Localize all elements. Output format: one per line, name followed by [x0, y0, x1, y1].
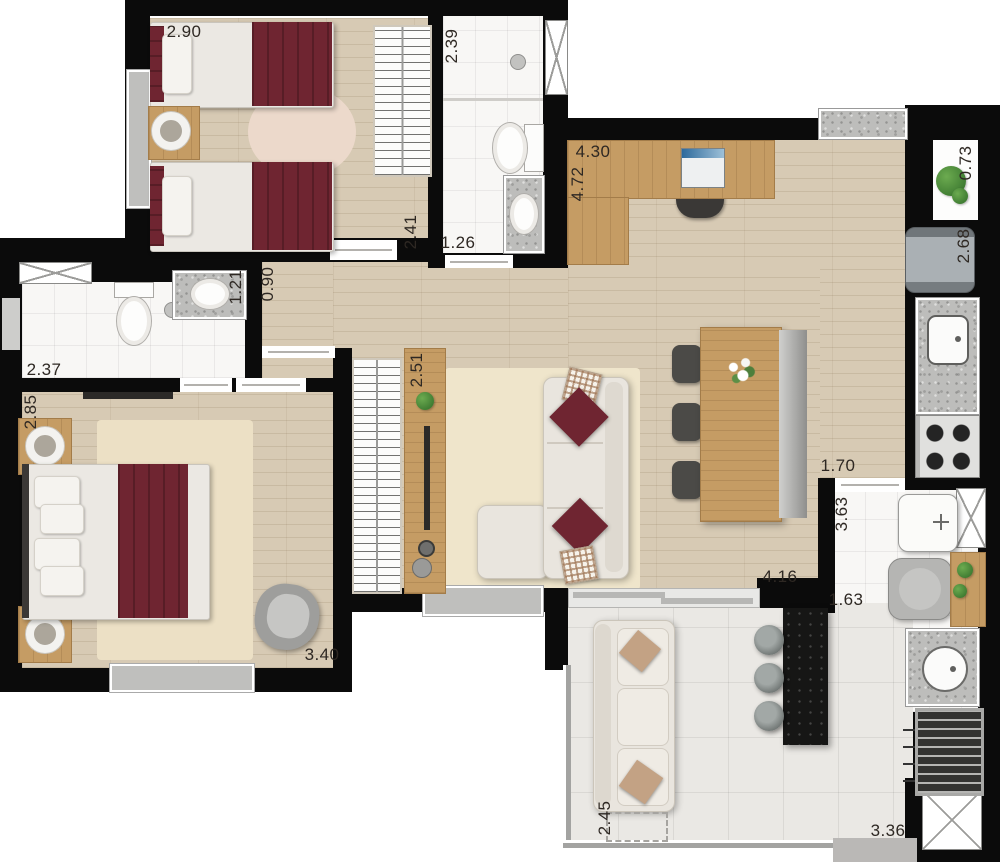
bar-stool	[754, 701, 784, 731]
shower-head-icon	[510, 54, 526, 70]
bath1-vent-window	[545, 20, 568, 95]
stove	[915, 415, 980, 478]
dim-bath1-width: 1.26	[441, 233, 476, 253]
faucet-icon	[950, 666, 956, 672]
dim-bath1-depth: 2.39	[442, 29, 462, 64]
bar-stool	[754, 625, 784, 655]
dim-fridge-wall: 2.68	[954, 229, 974, 264]
laptop-screen	[682, 149, 724, 158]
hall-opening	[262, 346, 335, 358]
dining-chair	[672, 461, 702, 499]
bath1-sink	[509, 193, 539, 235]
dim-bath2-width: 1.21	[226, 270, 246, 305]
living-wardrobe	[352, 358, 402, 594]
bedroom1-door	[330, 240, 397, 260]
dim-bedroom1-width: 2.90	[167, 22, 202, 42]
washing-machine	[898, 494, 958, 552]
sofa-back	[605, 382, 623, 572]
wall-kitchen-top	[560, 118, 822, 140]
bath2-sink	[190, 278, 230, 310]
twin-bed-2-blanket	[252, 162, 332, 250]
planter-plant-icon	[952, 188, 968, 204]
dim-bath2-length: 2.37	[27, 360, 62, 380]
laundry-machine	[888, 558, 952, 620]
twin-bed-1-pillow	[162, 34, 192, 94]
living-tv	[424, 426, 430, 530]
master-lamp-2	[26, 615, 64, 653]
pass-through-counter	[818, 108, 908, 140]
desk-return	[567, 197, 629, 265]
dim-terrace-depth: 2.45	[595, 801, 615, 836]
flower-centerpiece-icon	[722, 352, 760, 390]
bedroom1-lamp	[152, 112, 190, 150]
bed-pillow	[40, 504, 84, 534]
toilet2-bowl	[116, 296, 152, 346]
dim-kitchen-opening: 1.70	[821, 456, 856, 476]
bath2-door	[180, 378, 232, 392]
kitchen-sink	[927, 315, 969, 365]
dim-terrace-length: 3.36	[871, 821, 906, 841]
dim-master-length: 3.40	[305, 645, 340, 665]
machine-lid	[899, 568, 941, 610]
furniture-outline	[606, 812, 668, 842]
rack-plant-icon	[416, 392, 434, 410]
dining-chair	[672, 345, 702, 383]
terrace-sliding-door	[568, 588, 760, 608]
vase-icon	[412, 558, 432, 578]
toilet1-bowl	[492, 122, 528, 174]
door-panel	[573, 592, 665, 598]
dim-master-width: 2.85	[21, 395, 41, 430]
vase-icon	[418, 540, 435, 557]
shelf-plant-icon	[957, 562, 973, 578]
barbecue-grill	[915, 708, 984, 796]
wall-top-right	[905, 105, 1000, 140]
sofa-cushion	[617, 688, 669, 746]
door-panel	[661, 598, 753, 604]
dining-chair	[672, 403, 702, 441]
dim-hall-width: 0.90	[258, 267, 278, 302]
bath2-vent-window	[19, 262, 92, 284]
checkered-pillow	[559, 545, 598, 584]
armchair-cushion	[264, 591, 312, 640]
shower-base	[2, 298, 20, 350]
double-bed-blanket	[118, 464, 188, 618]
duct-shaft	[922, 790, 982, 850]
dim-desk-length: 4.72	[568, 167, 588, 202]
wall-top	[125, 0, 568, 16]
terrace-step	[833, 838, 917, 862]
terrace-railing-left	[563, 665, 571, 848]
terrace-sofa-back	[595, 624, 611, 806]
dim-desk-wall: 4.30	[576, 142, 611, 162]
apartment-floor-plan: 2.90 2.41 2.39 1.26 4.30 4.72 0.73 2.68 …	[0, 0, 1000, 862]
service-opening	[835, 478, 905, 492]
dim-media-wall: 2.51	[407, 353, 427, 388]
bar-stool	[754, 663, 784, 693]
faucet-icon	[955, 336, 961, 342]
master-lamp-1	[26, 427, 64, 465]
master-tv	[83, 392, 173, 399]
dining-bench	[779, 330, 807, 518]
twin-bed-2-pillow	[162, 176, 192, 236]
dim-service-length: 3.63	[832, 497, 852, 532]
wall-nook-west	[905, 138, 933, 222]
terrace-bar-counter	[783, 608, 828, 745]
double-bed-headboard	[22, 464, 29, 618]
dim-bedroom1-depth: 2.41	[401, 215, 421, 250]
bedroom1-wardrobe	[373, 25, 432, 177]
grill-skewers-icon	[903, 718, 915, 782]
wall-master-east	[333, 348, 352, 692]
dim-living-length: 4.16	[763, 567, 798, 587]
wall-terrace-west	[545, 588, 568, 670]
bed-pillow	[40, 566, 84, 596]
bath1-door	[445, 255, 513, 268]
shower-divider	[443, 98, 543, 101]
laundry-tub	[922, 646, 968, 692]
service-vent-window	[956, 488, 986, 548]
dim-planter-width: 0.73	[956, 146, 976, 181]
sofa-chaise	[477, 505, 549, 579]
shelf-plant-icon	[953, 584, 967, 598]
dim-service-width: 1.63	[829, 590, 864, 610]
laptop-icon	[681, 148, 725, 188]
master-door	[236, 378, 306, 392]
twin-bed-1-blanket	[252, 22, 332, 106]
master-window	[110, 664, 254, 692]
